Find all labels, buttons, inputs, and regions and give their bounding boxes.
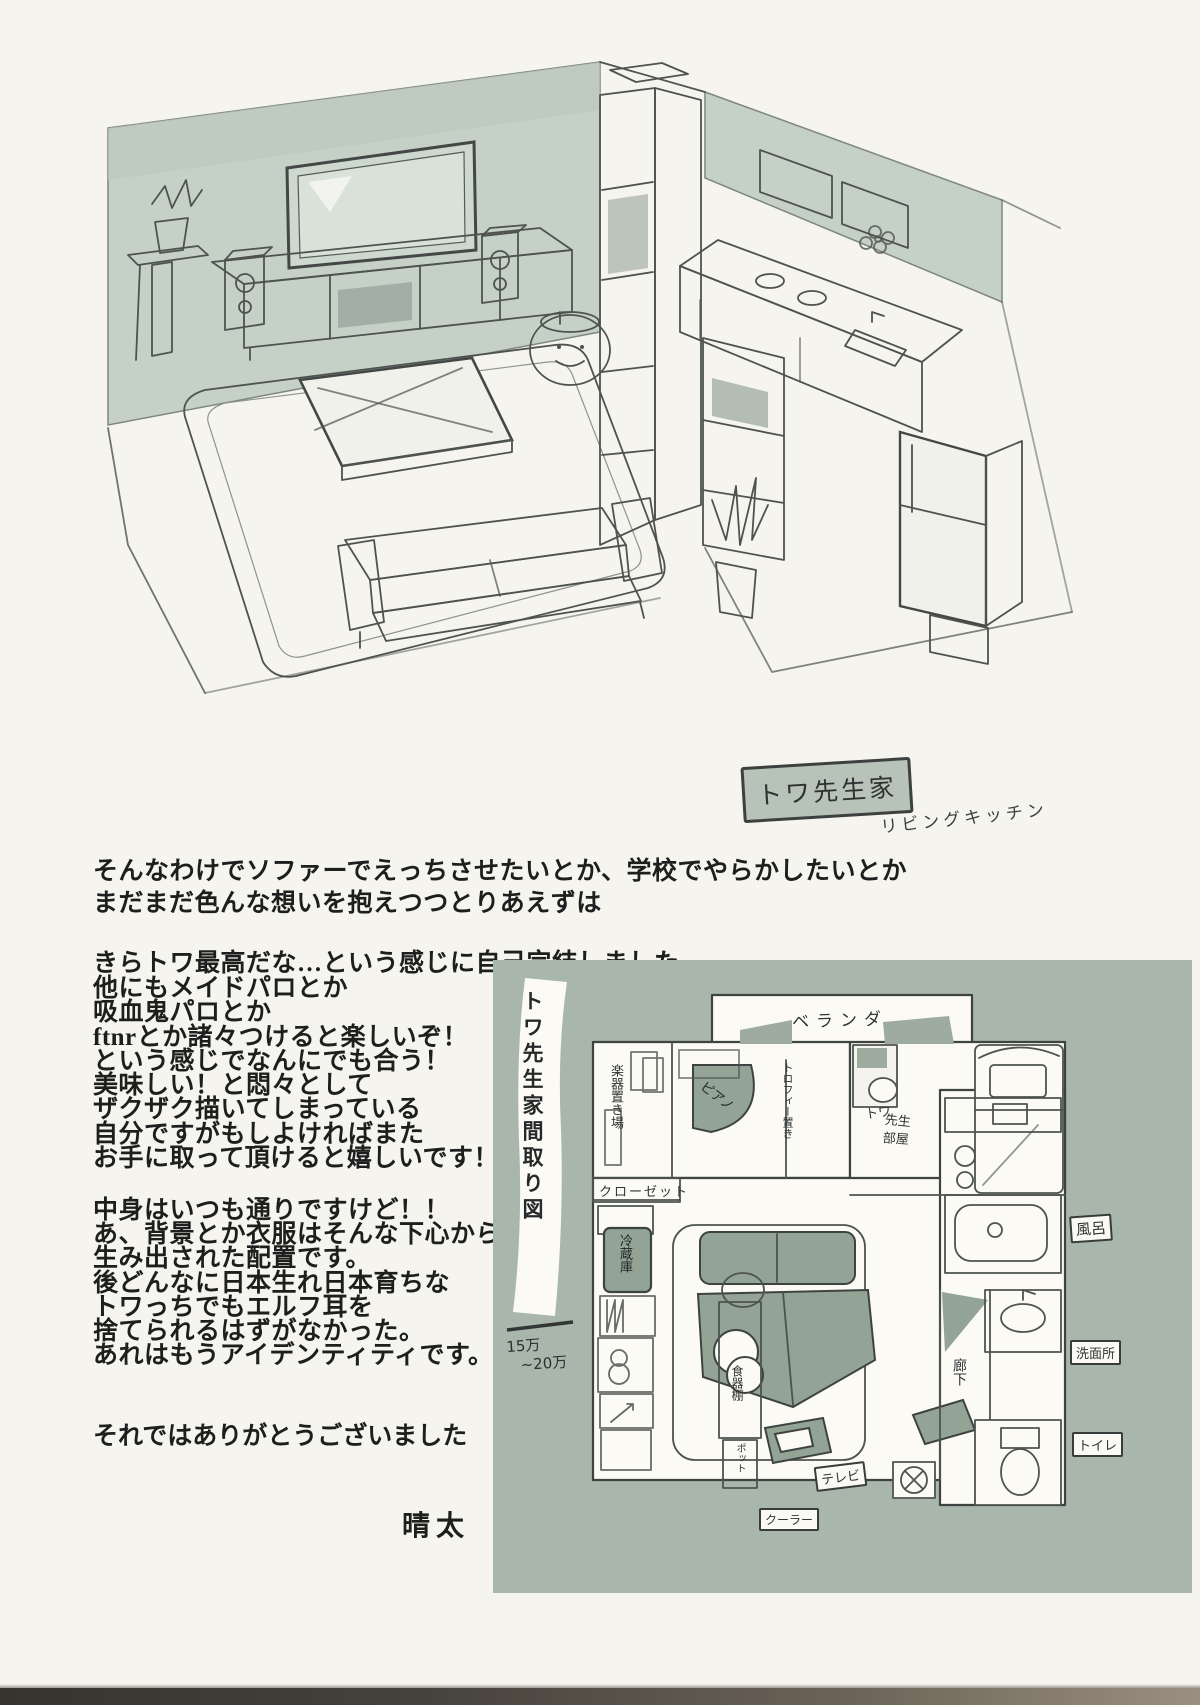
afterword-line: そんなわけでソファーでえっちさせたいとか、学校でやらかしたいとか [93, 856, 907, 888]
sketch-caption-text: トワ先生家 [756, 768, 898, 812]
afterword-line: 後どんなに日本生れ日本育ちな [93, 1272, 501, 1296]
scanned-afterword-page: トワ先生家 リビングキッチン そんなわけでソファーでえっちさせたいとか、学校でや… [0, 0, 1200, 1705]
label-aircon: クーラー [759, 1508, 819, 1531]
label-towa-room-3: 部屋 [882, 1127, 909, 1148]
label-bath: 風呂 [1069, 1214, 1113, 1244]
label-dish-cabinet: 食器棚 [729, 1365, 746, 1427]
afterword-line: あれはもうアイデンティティです。 [93, 1344, 501, 1368]
closing-line: それではありがとうございました [93, 1416, 467, 1452]
label-toilet: トイレ [1072, 1432, 1123, 1457]
afterword-line: トワっちでもエルフ耳を [93, 1296, 501, 1320]
afterword-paragraph-3: 他にもメイドパロとか 吸血鬼パロとか ftnrとか諸々つけると楽しいぞ！ という… [93, 977, 499, 1171]
label-instrument-storage: 楽器置き場 [606, 1064, 625, 1174]
label-fridge: 冷蔵庫 [615, 1234, 634, 1288]
afterword-line: ftnrとか諸々つけると楽しいぞ！ [93, 1026, 499, 1050]
afterword-line: 生み出された配置です。 [93, 1247, 501, 1271]
floorplan-title: トワ先生家間取り図 [517, 990, 547, 1312]
afterword-line: 吸血鬼パロとか [93, 1001, 499, 1025]
sketch-fridge [900, 432, 1022, 626]
sketch-divider-shelf [600, 63, 701, 545]
afterword-line: 自分ですがもしよければまた [93, 1123, 499, 1147]
afterword-line: という感じでなんにでも合う！ [93, 1050, 499, 1074]
label-pot: ポット [732, 1443, 747, 1487]
label-closet: クローゼット [599, 1181, 689, 1200]
floorplan-drawing [493, 960, 1192, 1593]
livingroom-kitchen-sketch [0, 0, 1200, 860]
label-trophy-shelf: トロフィー置き [779, 1062, 795, 1178]
label-balcony: ベランダ [792, 1004, 889, 1032]
afterword-paragraph-4: 中身はいつも通りですけど！！ あ、背景とか衣服はそんな下心から 生み出された配置… [93, 1199, 501, 1368]
afterword-line: 捨てられるはずがなかった。 [93, 1320, 501, 1344]
sketch-kitchen-wall [705, 92, 1002, 302]
afterword-line: 他にもメイドパロとか [93, 977, 499, 1001]
plan-washing-machine [893, 1462, 935, 1498]
plan-desk [853, 1045, 897, 1107]
author-signature: 晴太 [402, 1504, 470, 1544]
afterword-line: 美味しい！と悶々として [93, 1074, 499, 1098]
plan-toilet [975, 1420, 1061, 1505]
afterword-paragraph-1: そんなわけでソファーでえっちさせたいとか、学校でやらかしたいとか まだまだ色んな… [93, 856, 907, 920]
label-washroom: 洗面所 [1070, 1340, 1121, 1365]
label-hallway: 廊下 [949, 1358, 969, 1416]
afterword-line: 中身はいつも通りですけど！！ [93, 1199, 501, 1223]
afterword-line: まだまだ色んな想いを抱えつつとりあえずは [93, 888, 907, 920]
sketch-low-table [300, 358, 512, 480]
plan-bed [975, 1045, 1063, 1193]
floorplan-panel: トワ先生家間取り図 15万 ~20万 ベランダ 楽器置き場 ピアノ トロフィー置… [493, 960, 1192, 1593]
scan-edge-bottom [0, 1688, 1200, 1705]
afterword-line: あ、背景とか衣服はそんな下心から [93, 1223, 501, 1247]
afterword-line: ザクザク描いてしまっている [93, 1098, 499, 1122]
rent-line-2: ~20万 [520, 1353, 568, 1375]
afterword-line: お手に取って頂けると嬉しいです！ [93, 1147, 499, 1171]
rent-note: 15万 ~20万 [506, 1334, 568, 1376]
